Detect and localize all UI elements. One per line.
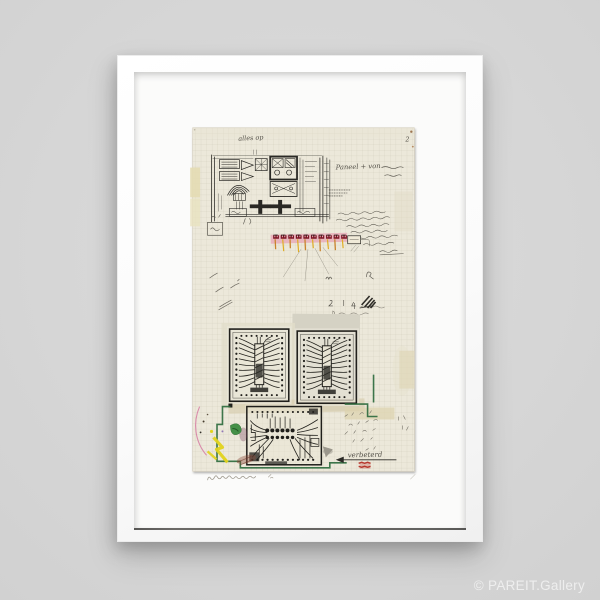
tape-strip-right (399, 351, 414, 389)
artwork-drawing: alles op 2 (134, 72, 466, 530)
pin-hole-speck (410, 131, 412, 133)
inscription-top-note: alles op (238, 133, 264, 142)
gallery-watermark: © PAREIT.Gallery (474, 578, 585, 593)
paper-stain (394, 191, 412, 231)
circuit-panel-right (295, 328, 360, 406)
mat-board: alles op 2 (134, 72, 466, 530)
inscription-page-number: 2 (404, 136, 409, 144)
inscription-side-note: Paneel + von (335, 162, 381, 172)
gallery-product-photo: alles op 2 (0, 0, 600, 600)
inscription-arrow-note: verbeterd (348, 451, 383, 460)
picture-frame: alles op 2 (117, 55, 483, 542)
tape-strip-left (190, 168, 200, 198)
artist-signature (208, 474, 416, 480)
circuit-panel-left (227, 326, 292, 404)
